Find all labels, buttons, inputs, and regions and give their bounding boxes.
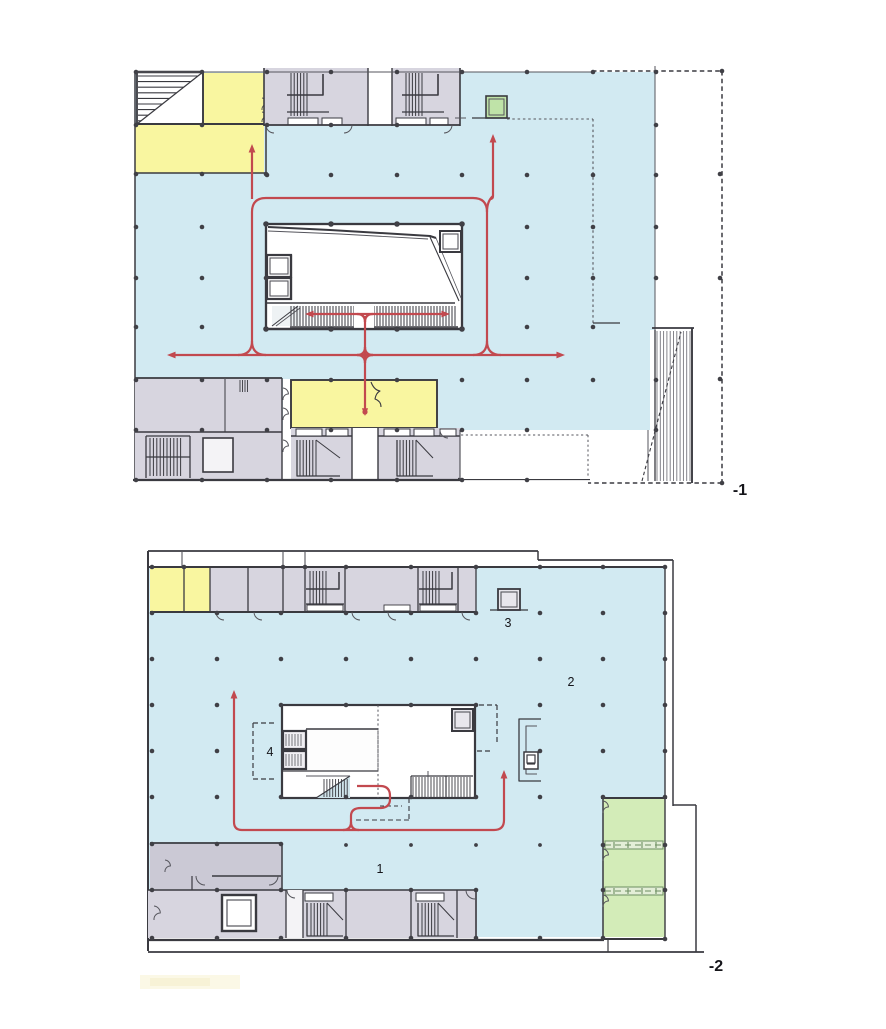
svg-text:-1: -1 xyxy=(733,482,747,499)
svg-text:2: 2 xyxy=(568,675,575,689)
svg-text:3: 3 xyxy=(505,616,512,630)
svg-text:1: 1 xyxy=(377,862,384,876)
svg-text:-2: -2 xyxy=(709,958,723,975)
svg-text:4: 4 xyxy=(267,745,274,759)
